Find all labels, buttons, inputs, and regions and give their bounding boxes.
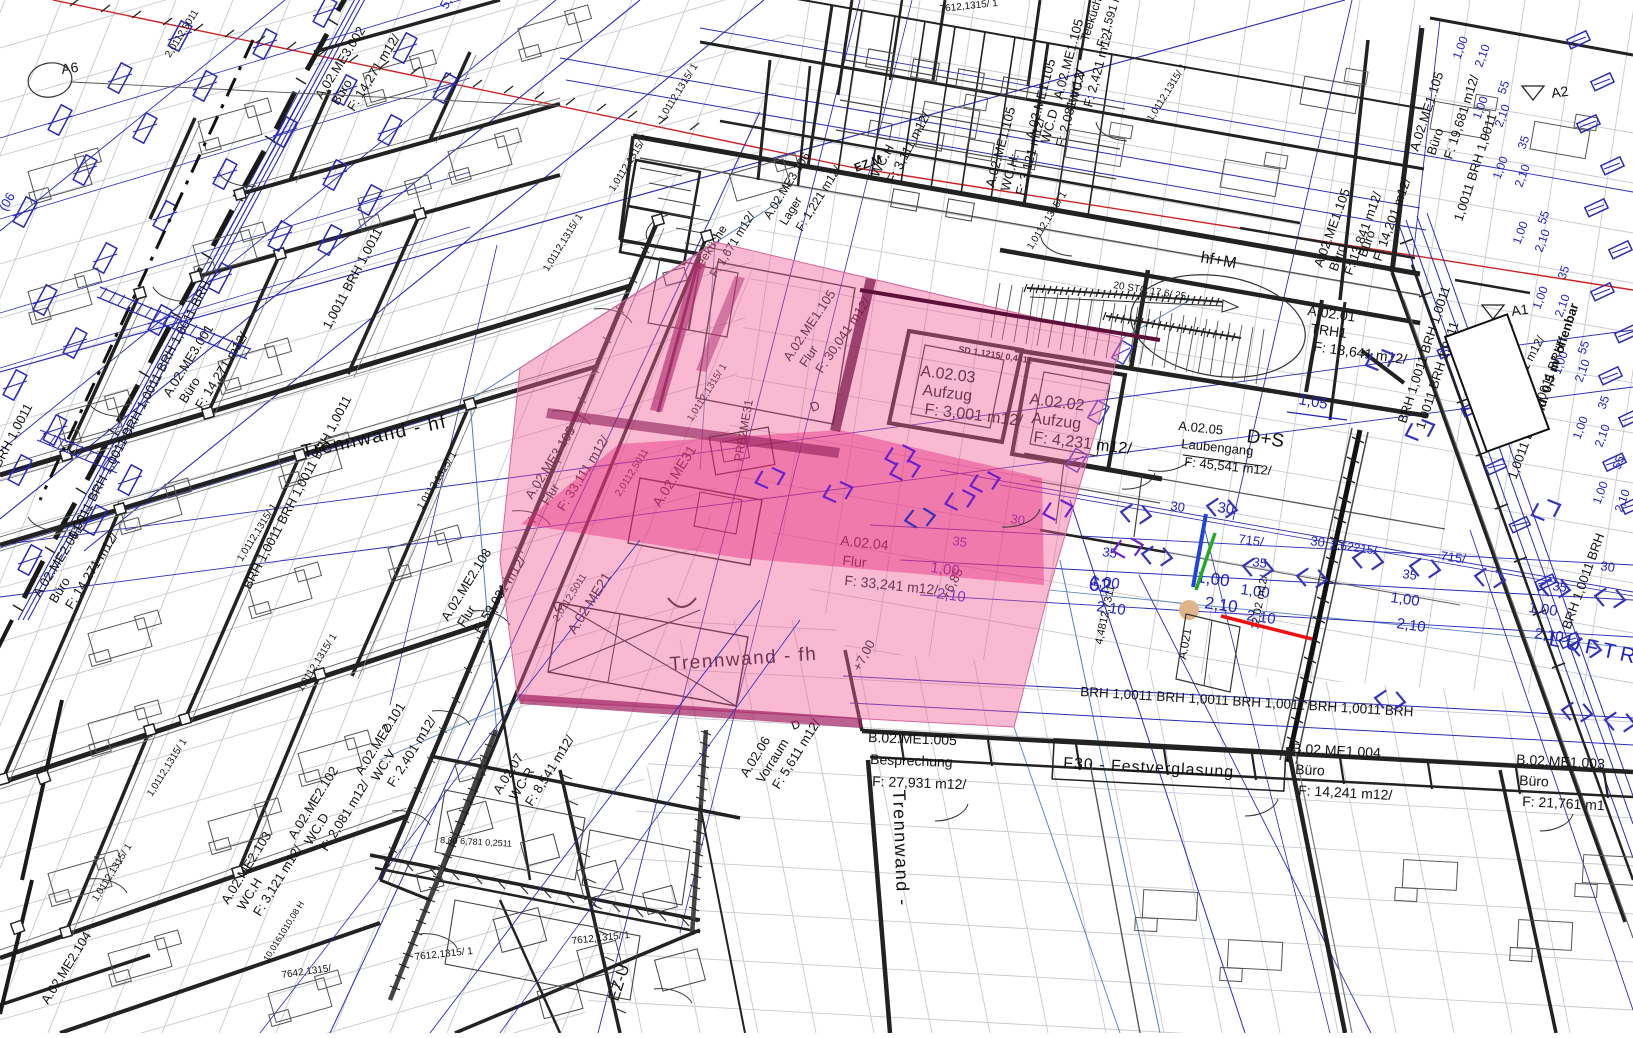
svg-text:30: 30 [1310, 533, 1326, 550]
svg-text:B.02.ME1.005: B.02.ME1.005 [868, 729, 957, 748]
svg-text:Trennwand -: Trennwand - [889, 789, 913, 907]
svg-text:A6: A6 [60, 59, 79, 77]
svg-text:A2: A2 [1550, 83, 1569, 101]
svg-text:35: 35 [1402, 566, 1418, 583]
svg-text:F: 27,931 m12/: F: 27,931 m12/ [872, 773, 967, 792]
svg-text:62: 62 [1087, 573, 1112, 598]
svg-text:Büro: Büro [1295, 761, 1326, 779]
svg-text:A1: A1 [1510, 301, 1529, 319]
svg-text:30: 30 [1600, 558, 1616, 575]
svg-text:30: 30 [1170, 498, 1186, 515]
svg-text:Besprechung: Besprechung [870, 751, 953, 770]
svg-text:30: 30 [1216, 499, 1235, 518]
svg-text:Büro: Büro [1519, 772, 1550, 790]
